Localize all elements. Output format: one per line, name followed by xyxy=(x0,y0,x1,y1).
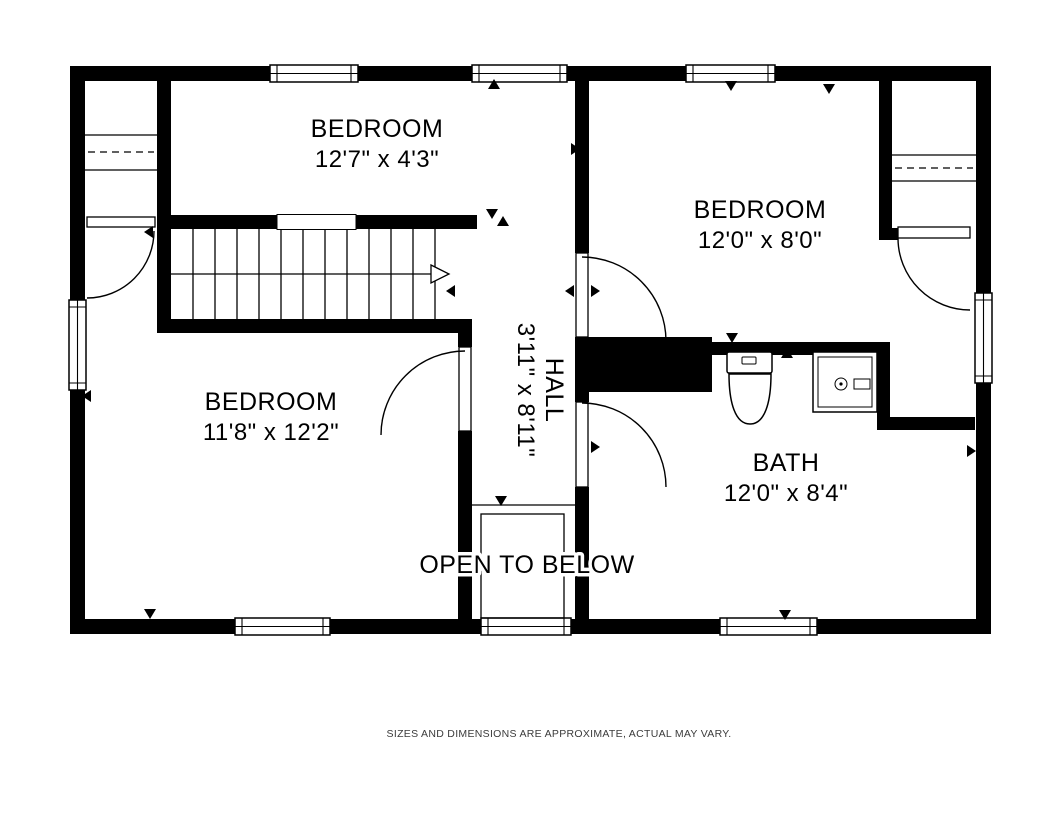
wall xyxy=(171,215,277,229)
wall xyxy=(157,319,472,333)
wall xyxy=(575,392,589,402)
wall xyxy=(879,228,898,240)
wall xyxy=(877,417,975,430)
sink-vanity-icon xyxy=(813,352,877,412)
wall-chase xyxy=(575,337,712,392)
floor-plan-svg: BEDROOM 12'7" x 4'3" BEDROOM 12'0" x 8'0… xyxy=(0,0,1056,816)
stair-opening xyxy=(277,215,356,230)
room-label-hall: HALL xyxy=(540,358,568,423)
open-to-below-label: OPEN TO BELOW xyxy=(419,551,634,579)
room-label-bedroom-left: BEDROOM xyxy=(205,388,338,416)
window xyxy=(481,618,571,635)
wall xyxy=(879,81,892,240)
wall xyxy=(157,81,171,333)
window xyxy=(720,618,817,635)
disclaimer-text: SIZES AND DIMENSIONS ARE APPROXIMATE, AC… xyxy=(387,728,732,740)
wall xyxy=(575,81,589,253)
window xyxy=(270,65,358,82)
room-dims-hall: 3'11" x 8'11" xyxy=(512,323,539,458)
floor-plan-image: BEDROOM 12'7" x 4'3" BEDROOM 12'0" x 8'0… xyxy=(0,0,1056,816)
room-label-bath: BATH xyxy=(753,449,820,477)
window xyxy=(686,65,775,82)
room-dims-bedroom-left: 11'8" x 12'2" xyxy=(203,419,339,446)
room-dims-bedroom-right: 12'0" x 8'0" xyxy=(698,227,822,254)
window xyxy=(975,293,992,383)
room-dims-bath: 12'0" x 8'4" xyxy=(724,480,848,507)
wall xyxy=(458,431,472,620)
window xyxy=(235,618,330,635)
room-label-bedroom-top: BEDROOM xyxy=(311,115,444,143)
wall xyxy=(458,319,472,347)
room-dims-bedroom-top: 12'7" x 4'3" xyxy=(315,146,439,173)
wall xyxy=(356,215,477,229)
window xyxy=(69,300,86,390)
window xyxy=(472,65,567,82)
room-label-bedroom-right: BEDROOM xyxy=(694,196,827,224)
wall xyxy=(877,342,890,430)
